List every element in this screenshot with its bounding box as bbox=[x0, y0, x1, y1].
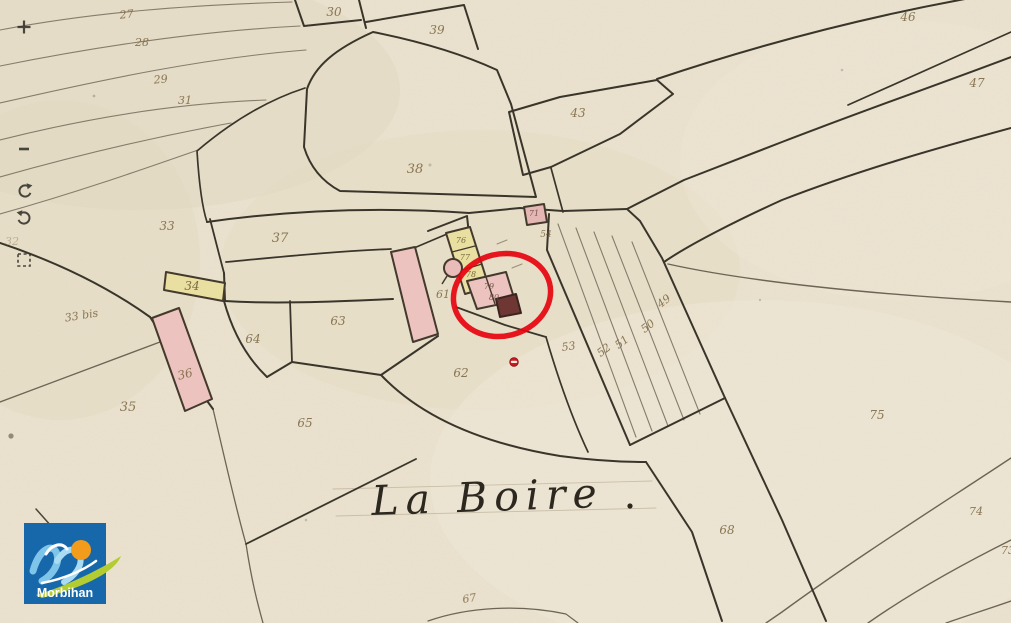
parcel-label: 68 bbox=[719, 523, 735, 537]
parcel-label: 67 bbox=[461, 591, 477, 606]
parcel-label: 71 bbox=[529, 209, 539, 218]
morbihan-logo: Morbihan bbox=[24, 519, 128, 611]
parcel-label: 37 bbox=[272, 231, 289, 246]
parcel-label: 30 bbox=[326, 5, 342, 19]
parcel-label: 38 bbox=[407, 162, 424, 177]
select-extent-button[interactable] bbox=[10, 247, 38, 273]
parcel-label: 28 bbox=[134, 36, 149, 49]
parcel-label: 35 bbox=[120, 400, 137, 415]
parcel-label: 79 bbox=[484, 282, 494, 291]
parcel-label: 53 bbox=[561, 339, 577, 354]
parcel-label: 46 bbox=[899, 10, 916, 24]
cadastral-map-viewer: 27 28 29 31 30 39 38 43 46 47 33 37 34 3… bbox=[0, 0, 1011, 623]
rotate-clockwise-icon bbox=[16, 182, 33, 199]
parcel-label: 47 bbox=[968, 76, 985, 90]
zoom-in-button[interactable] bbox=[10, 14, 38, 40]
parcel-label: 27 bbox=[118, 7, 134, 21]
cadastral-map[interactable]: 27 28 29 31 30 39 38 43 46 47 33 37 34 3… bbox=[0, 0, 1011, 623]
parcel-label: 80 bbox=[489, 293, 499, 302]
zoom-in-icon bbox=[16, 19, 32, 35]
building-dark bbox=[496, 294, 521, 317]
parcel-label: 61 bbox=[436, 288, 450, 301]
parcel-label: 43 bbox=[569, 106, 586, 120]
parcel-label: 63 bbox=[330, 314, 346, 328]
parcel-label: 62 bbox=[453, 366, 468, 380]
parcel-label: 75 bbox=[869, 408, 884, 422]
parcel-label: 76 bbox=[456, 236, 466, 245]
place-name: La Boire bbox=[369, 469, 604, 525]
select-extent-icon bbox=[16, 252, 32, 268]
zoom-out-button[interactable] bbox=[10, 136, 38, 162]
rotate-counterclockwise-icon bbox=[16, 209, 33, 226]
place-name-period bbox=[627, 503, 632, 508]
parcel-label: 33 bbox=[159, 219, 175, 233]
parcel-label: 29 bbox=[152, 72, 168, 86]
map-controls bbox=[10, 12, 46, 273]
parcel-label: 31 bbox=[178, 94, 192, 107]
logo-text: Morbihan bbox=[37, 586, 93, 600]
logo-sun bbox=[71, 540, 91, 560]
parcel-label: 77 bbox=[460, 253, 471, 262]
location-marker bbox=[510, 358, 519, 367]
rotate-counterclockwise-button[interactable] bbox=[10, 204, 38, 230]
parcel-label: 34 bbox=[184, 279, 199, 293]
parcel-label: 73 bbox=[1001, 544, 1011, 557]
place-name-group: La Boire bbox=[369, 469, 632, 525]
parcel-label: 54 bbox=[540, 230, 552, 240]
parcel-label: 74 bbox=[969, 505, 983, 518]
parcel-label: 65 bbox=[297, 416, 312, 430]
rotate-clockwise-button[interactable] bbox=[10, 177, 38, 203]
parcel-label: 39 bbox=[429, 23, 445, 37]
zoom-out-icon bbox=[17, 145, 31, 153]
parcel-label: 64 bbox=[245, 332, 260, 346]
